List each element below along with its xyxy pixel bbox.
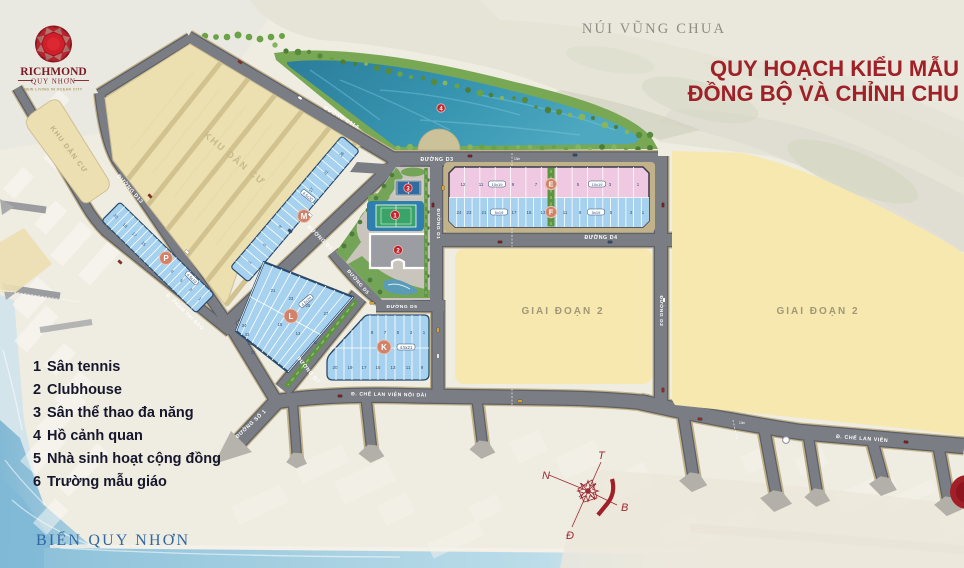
svg-text:23: 23 (467, 210, 472, 215)
svg-text:24: 24 (457, 210, 462, 215)
svg-text:NEW LIVING IN OCEAN CITY: NEW LIVING IN OCEAN CITY (24, 88, 83, 92)
svg-text:4: 4 (33, 428, 41, 444)
svg-text:NÚI VŨNG CHUA: NÚI VŨNG CHUA (582, 20, 726, 37)
svg-text:ĐƯỜNG D3: ĐƯỜNG D3 (420, 155, 453, 163)
svg-text:20: 20 (333, 365, 338, 370)
svg-text:13: 13 (391, 365, 396, 370)
svg-text:Hồ cảnh quan: Hồ cảnh quan (47, 428, 143, 444)
svg-text:32: 32 (248, 341, 253, 346)
svg-text:L: L (289, 312, 294, 321)
svg-text:QUY HOẠCH KIỂU MẪU: QUY HOẠCH KIỂU MẪU (710, 55, 959, 81)
svg-text:11: 11 (479, 182, 484, 187)
svg-text:11: 11 (313, 340, 318, 345)
svg-text:M: M (301, 212, 308, 221)
svg-text:GIAI ĐOẠN 2: GIAI ĐOẠN 2 (521, 306, 604, 317)
svg-text:QUY NHƠN: QUY NHƠN (31, 78, 76, 86)
svg-text:21: 21 (482, 210, 487, 215)
svg-text:21: 21 (271, 288, 276, 293)
svg-text:11: 11 (406, 365, 411, 370)
svg-text:F: F (549, 208, 554, 217)
svg-text:RICHMOND: RICHMOND (20, 66, 86, 78)
svg-text:17: 17 (512, 210, 517, 215)
svg-text:15: 15 (376, 365, 381, 370)
svg-text:Clubhouse: Clubhouse (47, 382, 122, 398)
svg-text:12: 12 (461, 182, 466, 187)
svg-text:E: E (548, 180, 553, 189)
svg-text:5x19: 5x19 (495, 210, 504, 215)
svg-text:33: 33 (245, 332, 250, 337)
svg-text:5: 5 (33, 451, 41, 467)
svg-text:15: 15 (527, 210, 532, 215)
svg-text:3: 3 (33, 405, 41, 421)
svg-text:10x19: 10x19 (492, 182, 504, 187)
svg-text:1: 1 (33, 359, 41, 375)
svg-text:11: 11 (563, 210, 568, 215)
svg-text:BIỂN QUY NHƠN: BIỂN QUY NHƠN (36, 530, 190, 549)
svg-text:19: 19 (348, 365, 353, 370)
svg-text:17: 17 (362, 365, 367, 370)
svg-text:B: B (621, 502, 628, 514)
svg-text:10x19: 10x19 (592, 182, 604, 187)
svg-text:Sân thể thao đa năng: Sân thể thao đa năng (47, 405, 194, 421)
svg-text:GIAI ĐOẠN 2: GIAI ĐOẠN 2 (776, 306, 859, 317)
svg-text:15: 15 (278, 322, 283, 327)
svg-text:Trường mẫu giáo: Trường mẫu giáo (47, 473, 167, 490)
svg-text:6: 6 (33, 474, 41, 490)
svg-text:13m: 13m (739, 421, 746, 425)
svg-text:P: P (163, 254, 169, 263)
svg-text:2: 2 (33, 382, 41, 398)
svg-text:N: N (542, 470, 550, 482)
svg-text:ĐỒNG BỘ VÀ CHỈNH CHU: ĐỒNG BỘ VÀ CHỈNH CHU (688, 81, 959, 106)
svg-text:Đ: Đ (566, 530, 574, 542)
svg-text:5x19: 5x19 (592, 210, 601, 215)
svg-text:13m: 13m (514, 157, 521, 161)
svg-text:Nhà sinh hoạt cộng đồng: Nhà sinh hoạt cộng đồng (47, 451, 221, 467)
svg-text:13: 13 (296, 331, 301, 336)
svg-text:4.5x21: 4.5x21 (400, 345, 413, 350)
svg-text:Sân tennis: Sân tennis (47, 359, 120, 375)
svg-text:31: 31 (251, 350, 256, 355)
svg-text:34: 34 (242, 323, 247, 328)
svg-text:K: K (381, 343, 387, 352)
svg-text:23: 23 (289, 296, 294, 301)
svg-text:27: 27 (324, 311, 329, 316)
svg-text:ĐƯỜNG D4: ĐƯỜNG D4 (584, 233, 617, 241)
